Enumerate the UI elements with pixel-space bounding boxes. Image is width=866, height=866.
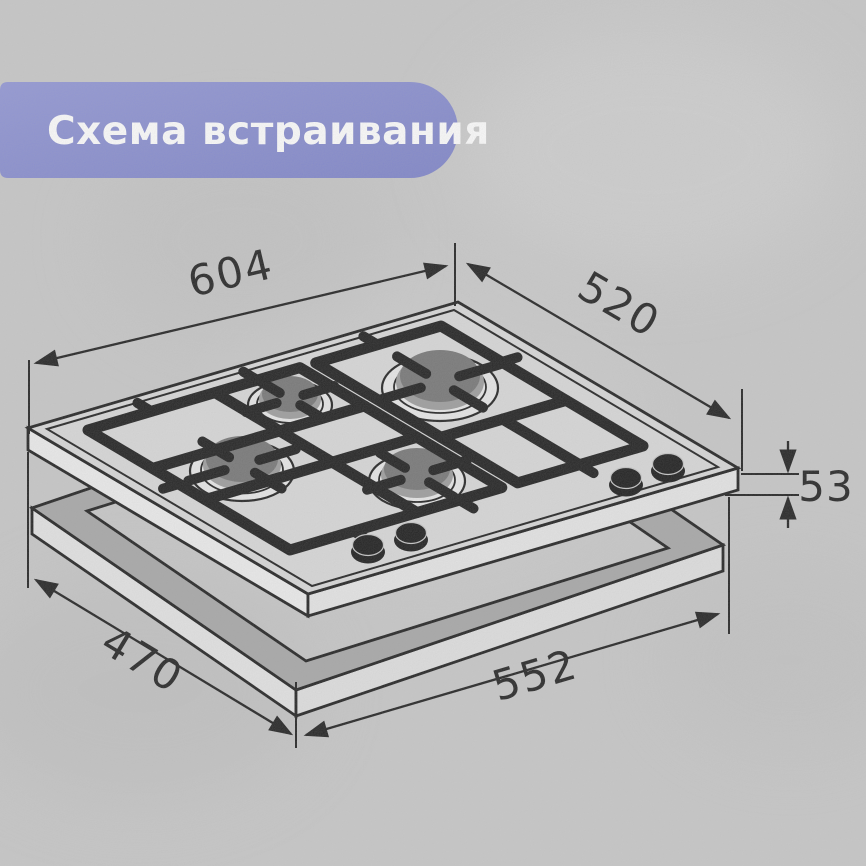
installation-diagram: 604 520 53 470 552 Схема встраивания (0, 0, 866, 866)
installation-scheme-page: 604 520 53 470 552 Схема встраивания (0, 0, 866, 866)
grain-texture-overlay (0, 0, 866, 866)
